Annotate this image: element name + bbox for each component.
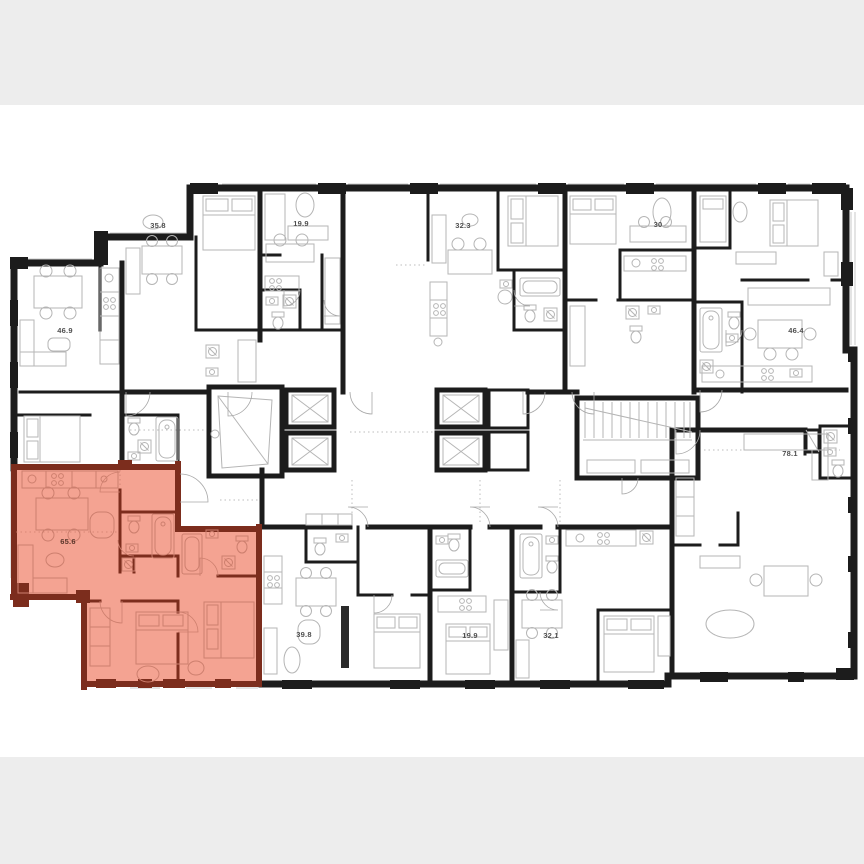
floor-plan: 46.9 35.8 19.9 32.3 30 46.4 65.6 39.8 19… [0, 0, 864, 864]
highlighted-unit-area-label: 65.6 [60, 537, 75, 546]
unit-area-label: 78.1 [782, 449, 797, 458]
elevator-shaft-icon [286, 390, 334, 427]
unit-area-label: 46.4 [788, 326, 804, 335]
unit-area-label: 46.9 [57, 326, 72, 335]
unit-30-furniture [570, 196, 686, 366]
unit-46-4-furniture [700, 196, 838, 382]
unit-area-label: 30 [654, 220, 663, 229]
unit-area-label: 39.8 [296, 630, 311, 639]
highlighted-unit[interactable] [13, 460, 262, 688]
unit-19-9-top-furniture [265, 193, 340, 329]
stairwell-icon [577, 398, 698, 478]
unit-area-label: 32.1 [543, 631, 558, 640]
unit-19-9-bottom-furniture [436, 534, 508, 674]
unit-area-label: 35.8 [150, 221, 165, 230]
core-layer [209, 387, 698, 478]
elevator-shaft-icon [437, 390, 485, 427]
unit-area-label: 19.9 [293, 219, 308, 228]
unit-area-label: 19.9 [462, 631, 477, 640]
floor-plan-page: 46.9 35.8 19.9 32.3 30 46.4 65.6 39.8 19… [0, 0, 864, 864]
elevator-shaft-icon [437, 433, 485, 470]
elevator-shaft-icon [286, 433, 334, 470]
stairwell-icon [209, 387, 282, 476]
unit-area-label: 32.3 [455, 221, 470, 230]
unit-32-1-furniture [516, 530, 670, 678]
